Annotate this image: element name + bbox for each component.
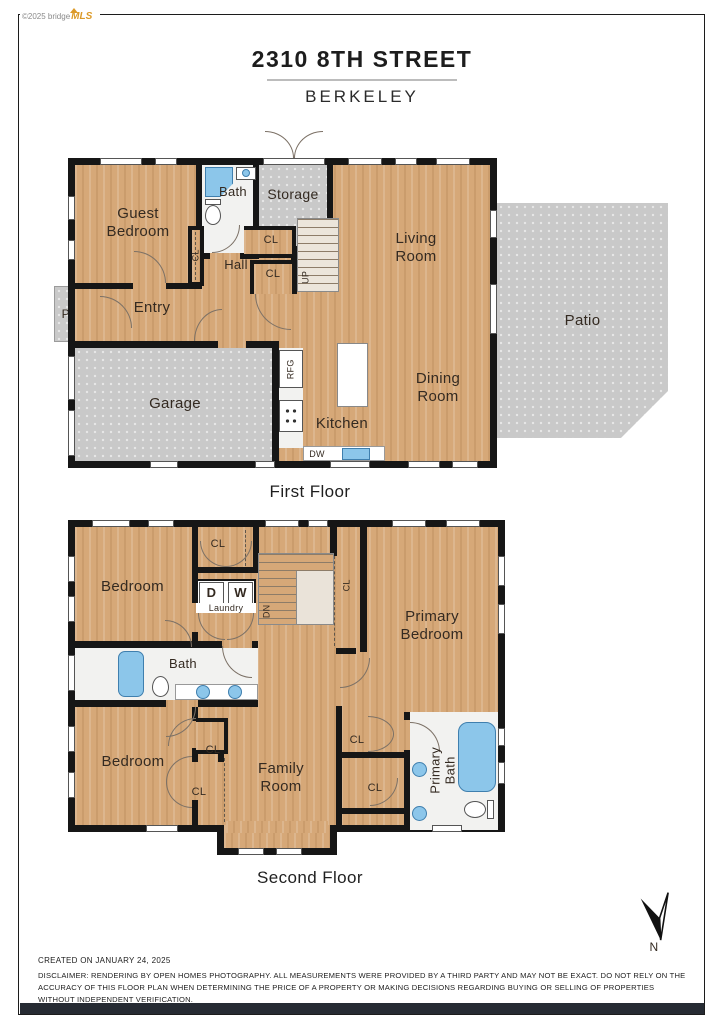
dryer: D	[199, 582, 224, 604]
wall	[342, 808, 404, 814]
sink-basin	[228, 685, 242, 699]
washer-label: W	[234, 585, 247, 600]
window	[68, 596, 75, 622]
washer: W	[228, 582, 253, 604]
bath-counter	[175, 684, 258, 700]
primary-bath-label: Primary Bath	[428, 739, 459, 801]
wall	[360, 520, 367, 652]
closet-dashed-line	[334, 556, 335, 646]
bathtub	[118, 651, 144, 697]
closet-label: CL	[198, 744, 228, 757]
sink-basin	[196, 685, 210, 699]
window	[498, 728, 505, 746]
created-date: CREATED ON JANUARY 24, 2025	[38, 956, 171, 965]
window	[392, 520, 426, 527]
wall	[336, 648, 356, 654]
primary-bathtub	[458, 722, 496, 792]
north-compass: N	[632, 888, 688, 954]
closet-dashed-line	[224, 758, 225, 822]
closet-label: CL	[342, 575, 353, 595]
wall	[198, 700, 258, 707]
window	[68, 655, 75, 691]
closet-label: CL	[184, 786, 214, 799]
floor-plan-page: ©2025 bridgeMLS 2310 8TH STREET BERKELEY…	[0, 0, 724, 1024]
window	[92, 520, 130, 527]
window	[238, 848, 264, 855]
window	[498, 604, 505, 634]
family-room-label: Family Room	[243, 760, 319, 795]
sink-basin	[412, 806, 427, 821]
window	[308, 520, 328, 527]
wall	[198, 567, 253, 573]
wall	[342, 752, 404, 758]
footer-bar	[20, 1003, 704, 1014]
window	[68, 556, 75, 582]
primary-bedroom-label: Primary Bedroom	[388, 608, 476, 643]
family-room-opening-patch	[226, 821, 328, 833]
window	[432, 825, 462, 832]
window	[68, 726, 75, 752]
window	[146, 825, 178, 832]
window	[498, 556, 505, 586]
window	[446, 520, 480, 527]
sink-basin	[412, 762, 427, 777]
window	[68, 772, 75, 798]
dryer-label: D	[207, 585, 217, 600]
second-floor-plan: CL D W Laundry DN CL CL	[0, 0, 724, 1024]
wall	[72, 700, 166, 707]
stairs-down-label: DN	[262, 600, 273, 622]
toilet-tank	[487, 800, 494, 819]
bedroom-top-label: Bedroom	[90, 578, 175, 596]
stair-landing	[296, 571, 333, 624]
bedroom-bottom-label: Bedroom	[93, 753, 173, 771]
window	[265, 520, 299, 527]
toilet	[152, 676, 169, 697]
wall	[252, 641, 258, 648]
disclaimer-text: DISCLAIMER: RENDERING BY OPEN HOMES PHOT…	[38, 970, 690, 1006]
window	[148, 520, 174, 527]
toilet	[464, 801, 486, 818]
laundry-label: Laundry	[196, 603, 256, 614]
north-label: N	[644, 940, 664, 954]
bath2-label: Bath	[158, 656, 208, 671]
window	[276, 848, 302, 855]
wall	[72, 641, 222, 648]
second-floor-caption: Second Floor	[100, 868, 520, 888]
wall	[330, 520, 337, 556]
window	[498, 762, 505, 784]
wall	[192, 800, 198, 826]
